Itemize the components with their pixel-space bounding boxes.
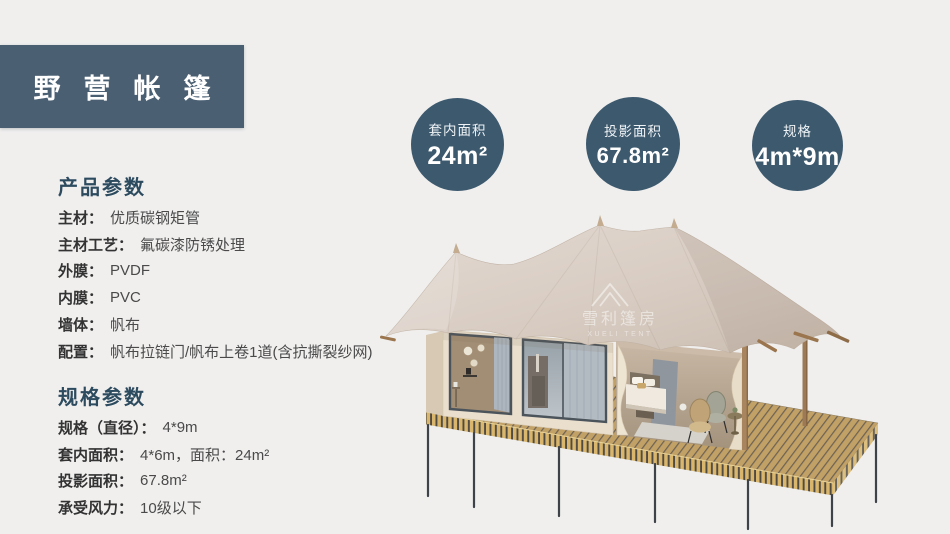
- param-label: 配置：: [58, 341, 103, 362]
- param-label: 规格（直径）：: [58, 417, 156, 438]
- title-banner: 野营帐篷: [0, 45, 244, 128]
- param-value: 帆布: [110, 314, 140, 335]
- watermark-cn: 雪利篷房: [582, 309, 658, 328]
- param-row: 主材工艺： 氟碳漆防锈处理: [58, 231, 373, 258]
- badge-value: 67.8m²: [597, 143, 670, 169]
- param-row: 套内面积： 4*6m，面积：24m²: [58, 441, 269, 468]
- param-value: 优质碳钢矩管: [110, 207, 200, 228]
- section-heading: 产品参数: [58, 176, 373, 200]
- badge-value: 24m²: [427, 142, 487, 171]
- product-params-section: 产品参数 主材： 优质碳钢矩管 主材工艺： 氟碳漆防锈处理 外膜： PVDF 内…: [58, 176, 373, 365]
- badge-size: 规格 4m*9m: [752, 100, 843, 191]
- tent-render: 雪利篷房 XUELI TENT: [378, 204, 948, 534]
- param-label: 内膜：: [58, 287, 103, 308]
- watermark-en: XUELI TENT: [587, 331, 652, 338]
- param-value: 氟碳漆防锈处理: [140, 234, 245, 255]
- badge-label: 规格: [783, 120, 812, 140]
- param-value: 4*6m，面积：24m²: [140, 444, 269, 465]
- param-list: 规格（直径）： 4*9m 套内面积： 4*6m，面积：24m² 投影面积： 67…: [58, 414, 269, 521]
- section-heading: 规格参数: [58, 386, 269, 410]
- param-row: 规格（直径）： 4*9m: [58, 414, 269, 441]
- param-value: 4*9m: [163, 419, 198, 436]
- param-label: 套内面积：: [58, 444, 133, 465]
- badge-label: 套内面积: [429, 119, 487, 139]
- badge-label: 投影面积: [604, 120, 662, 140]
- param-value: 帆布拉链门/帆布上卷1道(含抗撕裂纱网): [110, 341, 373, 362]
- param-list: 主材： 优质碳钢矩管 主材工艺： 氟碳漆防锈处理 外膜： PVDF 内膜： PV…: [58, 204, 373, 365]
- param-label: 墙体：: [58, 314, 103, 335]
- param-row: 外膜： PVDF: [58, 258, 373, 285]
- param-label: 主材工艺：: [58, 234, 133, 255]
- badge-value: 4m*9m: [755, 143, 840, 172]
- spec-params-section: 规格参数 规格（直径）： 4*9m 套内面积： 4*6m，面积：24m² 投影面…: [58, 386, 269, 521]
- param-row: 内膜： PVC: [58, 284, 373, 311]
- param-row: 墙体： 帆布: [58, 311, 373, 338]
- param-row: 配置： 帆布拉链门/帆布上卷1道(含抗撕裂纱网): [58, 338, 373, 365]
- param-value: 10级以下: [140, 497, 202, 518]
- param-row: 承受风力： 10级以下: [58, 494, 269, 521]
- param-label: 主材：: [58, 207, 103, 228]
- page-title: 野营帐篷: [34, 67, 234, 106]
- param-value: PVDF: [110, 262, 150, 279]
- param-label: 外膜：: [58, 260, 103, 281]
- slide-canvas: 野营帐篷 套内面积 24m² 投影面积 67.8m² 规格 4m*9m 产品参数…: [0, 0, 950, 534]
- param-row: 投影面积： 67.8m²: [58, 468, 269, 495]
- badge-inner-area: 套内面积 24m²: [411, 98, 504, 191]
- param-value: 67.8m²: [140, 472, 187, 489]
- param-value: PVC: [110, 289, 141, 306]
- param-label: 投影面积：: [58, 470, 133, 491]
- param-label: 承受风力：: [58, 497, 133, 518]
- badge-projection-area: 投影面积 67.8m²: [586, 97, 680, 191]
- param-row: 主材： 优质碳钢矩管: [58, 204, 373, 231]
